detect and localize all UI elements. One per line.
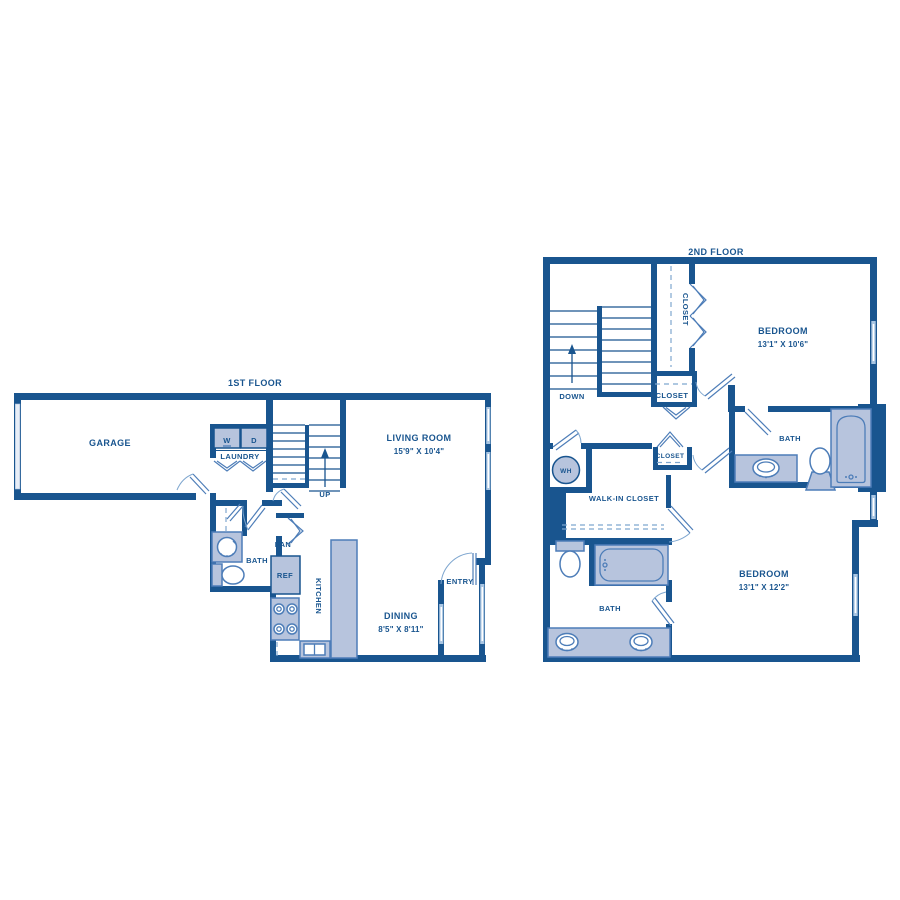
small-closet-label: CLOSET [656, 391, 689, 400]
toilet-tank [212, 564, 222, 586]
walk-in-closet: WALK-IN CLOSET [562, 494, 693, 542]
pantry-label: PAN [275, 540, 291, 549]
kitchen-island [331, 540, 357, 658]
garage-hall-door [177, 474, 209, 494]
first-floor-bath: BATH [212, 504, 268, 586]
upper-toilet [810, 448, 830, 474]
bedroom2-label: BEDROOM [739, 569, 789, 579]
first-floor-plan: 1ST FLOOR [14, 378, 491, 662]
first-floor-title: 1ST FLOOR [228, 378, 282, 388]
walk-in-label: WALK-IN CLOSET [589, 494, 659, 503]
lower-bath-label: BATH [599, 604, 621, 613]
water-heater-label: WH [560, 468, 572, 475]
kitchen-area: PAN REF KITCHEN [271, 518, 357, 658]
upper-bath: BATH [735, 409, 871, 490]
bath-label: BATH [246, 556, 268, 565]
dining-label: DINING [384, 611, 418, 621]
bedroom2-dim: 13'1" X 12'2" [739, 583, 789, 592]
toilet [222, 566, 244, 584]
living-room-dim: 15'9" X 10'4" [394, 447, 444, 456]
lower-bathtub [595, 545, 668, 585]
mid-closet-label: CLOSET [656, 453, 685, 460]
garage-label: GARAGE [89, 438, 131, 448]
dining-dim: 8'5" X 8'11" [378, 625, 423, 634]
bedroom2-door [693, 448, 732, 473]
laundry-closet: W D LAUNDRY [214, 428, 267, 471]
entry-porch-windows [439, 584, 484, 644]
laundry-label: LAUNDRY [220, 452, 259, 461]
lower-toilet-tank [556, 541, 584, 551]
washer-label: W [223, 436, 231, 445]
mid-closet: CLOSET [656, 432, 685, 463]
living-room-label: LIVING ROOM [387, 433, 452, 443]
lower-bath: BATH [548, 541, 674, 657]
lower-toilet [560, 551, 580, 577]
up-label: UP [319, 490, 330, 499]
fridge-label: REF [277, 571, 293, 580]
floor-plan-svg: 1ST FLOOR [0, 0, 900, 900]
entry-label: ENTRY [446, 577, 473, 586]
second-floor-title: 2ND FLOOR [688, 247, 744, 257]
bedroom1-dim: 13'1" X 10'6" [758, 340, 808, 349]
tall-closet-label: CLOSET [681, 293, 690, 326]
upper-bath-label: BATH [779, 434, 801, 443]
dryer-label: D [251, 436, 257, 445]
kitchen-label: KITCHEN [314, 578, 323, 614]
tall-closet: CLOSET [671, 266, 706, 367]
bedroom1-label: BEDROOM [758, 326, 808, 336]
down-label: DOWN [559, 392, 584, 401]
water-heater-closet: WH [553, 430, 582, 484]
up-arrow [321, 448, 329, 487]
garage-door [15, 404, 20, 489]
small-closet: CLOSET [655, 384, 692, 419]
second-floor-plan: 2ND FLOOR [543, 247, 886, 662]
